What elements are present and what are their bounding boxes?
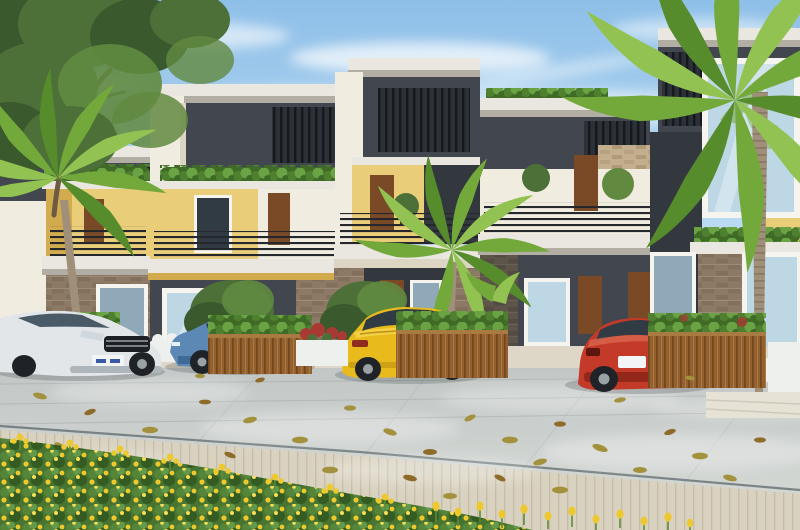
balcony-plant bbox=[602, 168, 634, 200]
license-plate bbox=[618, 356, 646, 368]
balcony-plant bbox=[522, 164, 550, 192]
balcony-railing bbox=[154, 231, 338, 261]
door bbox=[578, 276, 602, 334]
rendered-scene bbox=[0, 0, 800, 530]
scene-canvas bbox=[0, 0, 800, 530]
grille bbox=[104, 336, 150, 352]
taillight bbox=[352, 340, 368, 347]
white-chair bbox=[780, 360, 798, 384]
white-steps bbox=[706, 392, 800, 418]
white-planter-box bbox=[296, 340, 348, 366]
taillight bbox=[586, 348, 600, 356]
planter-3 bbox=[648, 313, 766, 388]
